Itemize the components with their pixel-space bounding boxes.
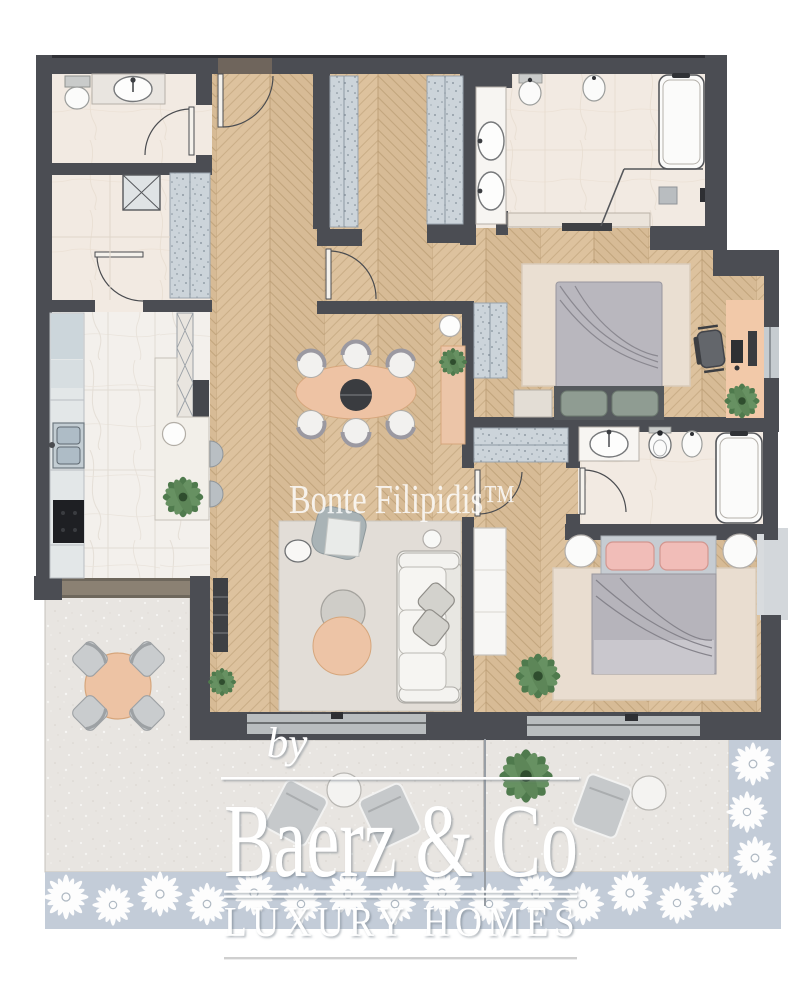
svg-text:LUXURY HOMES: LUXURY HOMES xyxy=(224,900,580,946)
svg-text:Bonte Filipidis™: Bonte Filipidis™ xyxy=(289,476,515,522)
svg-text:by: by xyxy=(267,720,309,767)
svg-text:Baerz & Co: Baerz & Co xyxy=(224,782,578,899)
